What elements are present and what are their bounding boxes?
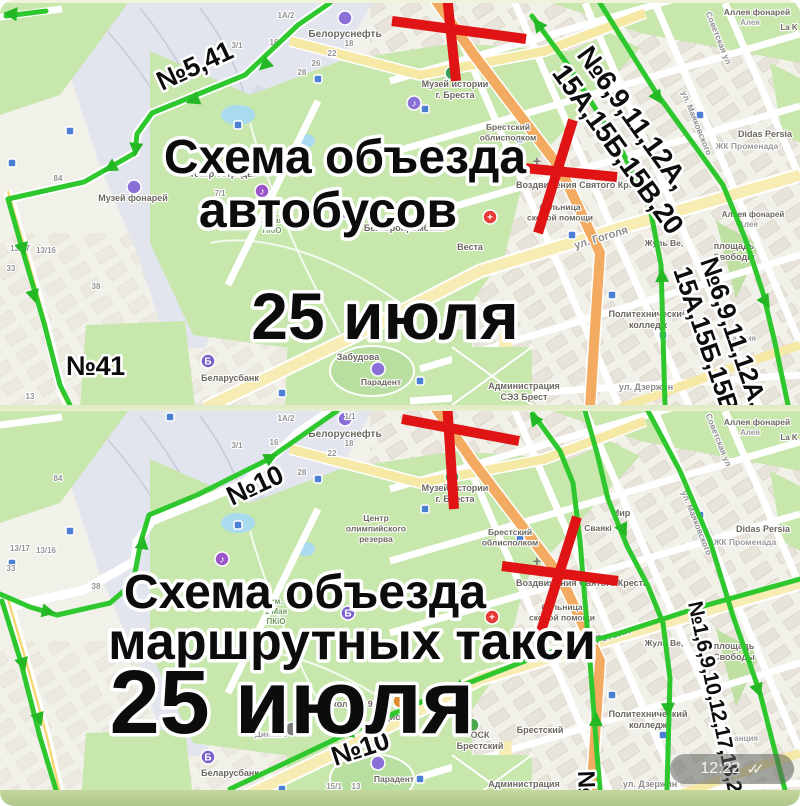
- map-label-line: 18: [345, 39, 354, 48]
- bus-stop-icon: [416, 775, 424, 783]
- map-label-line: 28: [298, 68, 307, 77]
- map-label: Аллея фонарей: [722, 210, 785, 219]
- map-label: La K: [780, 23, 798, 32]
- bus-stop-icon: [234, 521, 242, 529]
- map-label-line: 1А/2: [278, 414, 295, 423]
- map-label: Didas Persia: [738, 129, 793, 139]
- map-label-line: Didas Persia: [736, 524, 791, 534]
- map-label: 13/16: [36, 246, 57, 255]
- map-label-line: 13: [26, 392, 35, 401]
- bus-stop-icon: [166, 413, 174, 421]
- map-label: 16: [270, 438, 279, 447]
- bus-stop-icon: [421, 505, 429, 513]
- panel-title-line2: автобусов: [199, 182, 457, 238]
- map-label-line: La K: [780, 23, 798, 32]
- poi-marker-glyph: +: [487, 212, 493, 223]
- map-label-line: Didas Persia: [738, 129, 793, 139]
- map-label-line: 13: [352, 782, 361, 790]
- bus-stop-icon: [66, 527, 74, 535]
- map-label-line: резерва: [359, 534, 393, 544]
- poi-marker-icon: [338, 11, 352, 25]
- map-label-line: 1А/2: [278, 11, 295, 20]
- map-label: Забудова: [337, 352, 380, 362]
- map-label-line: облисполком: [482, 538, 539, 548]
- map-label: 1А/2: [278, 11, 295, 20]
- timestamp-time: 12:22: [700, 760, 740, 778]
- map-label-line: ЖК Променада: [715, 141, 779, 151]
- map-label-line: 22: [328, 449, 337, 458]
- map-label: 13/17: [10, 544, 31, 553]
- map-label-line: 16: [270, 438, 279, 447]
- bus-stop-icon: [66, 127, 74, 135]
- map-label-line: 22: [328, 49, 337, 58]
- bus-stop-icon: [314, 75, 322, 83]
- map-label-line: 1/1: [344, 412, 356, 421]
- map-label-line: СЭЗ Брест: [500, 392, 548, 402]
- map-label: 1/1: [344, 412, 356, 421]
- map-label-line: 3/1: [231, 41, 243, 50]
- read-receipt-icon: ✓✓: [746, 760, 763, 778]
- map-label-line: Администрация: [488, 779, 560, 789]
- bus-stop-icon: [659, 731, 667, 739]
- map-label-line: Аллея фонарей: [722, 210, 785, 219]
- panel-date: 25 июля: [251, 279, 518, 353]
- map-label: 18: [345, 439, 354, 448]
- map-label: ЖК Променада: [713, 537, 777, 547]
- map-label: 22: [328, 49, 337, 58]
- map-label: ЖК Променада: [715, 141, 779, 151]
- map-label: 26: [312, 59, 321, 68]
- map-label-line: площадь: [714, 641, 755, 651]
- route-number-line: №41: [66, 351, 125, 381]
- poi-marker-glyph: Б: [204, 356, 211, 367]
- bus-stop-icon: [568, 231, 576, 239]
- map-label: 13: [26, 392, 35, 401]
- map-label: 3/1: [231, 441, 243, 450]
- map-label: Музей фонарей: [98, 193, 168, 203]
- map-label-line: Парадент: [374, 774, 414, 784]
- bus-stop-icon: [278, 389, 286, 397]
- bus-stop-icon: [278, 785, 286, 790]
- map-label-line: Музей фонарей: [98, 193, 168, 203]
- map-label-line: La K: [780, 433, 798, 442]
- map-label-line: Брестский: [517, 725, 564, 735]
- map-label-line: Центр: [363, 513, 389, 523]
- map-label: 33: [7, 564, 16, 573]
- map-label: Жуль Ве,: [644, 238, 684, 248]
- map-label-line: Алея: [740, 428, 760, 437]
- map-label-line: 13/16: [36, 546, 57, 555]
- map-label: La K: [780, 433, 798, 442]
- map-label: Брестский: [517, 725, 564, 735]
- map-label-line: Парадент: [361, 377, 401, 387]
- map-label: Парадент: [361, 377, 401, 387]
- map-label-line: Забудова: [337, 352, 380, 362]
- bus-stop-icon: [234, 121, 242, 129]
- map-label-line: 38: [92, 582, 101, 591]
- road-closure-x-stroke: [447, 411, 454, 509]
- map-label-line: Политехнический: [609, 709, 688, 719]
- map-label-line: Алея: [740, 18, 760, 27]
- map-label-line: Аллея фонарей: [724, 417, 790, 427]
- route-number-label: №41: [66, 351, 125, 381]
- panel-title-line1: Схема объезда: [124, 566, 486, 619]
- map-label-line: 28: [298, 468, 307, 477]
- map-label: Беларусбанк: [201, 768, 259, 778]
- map-label: Didas Persia: [736, 524, 791, 534]
- map-label-line: 38: [92, 282, 101, 291]
- map-svg-0: ♪++ББ♪ БелоруснефтьТеатр эстрадыМузей фо…: [0, 3, 800, 405]
- map-label-line: Веста: [457, 242, 484, 252]
- map-label: 84: [54, 174, 63, 183]
- map-label-line: олимпийского: [346, 524, 406, 534]
- map-label: Алея: [740, 428, 760, 437]
- map-label: 38: [92, 582, 101, 591]
- map-panel-marshrutki: ♪++ББ БелоруснефтьЦентролимпийскогорезер…: [0, 411, 800, 790]
- map-label-line: Политехнический: [609, 309, 688, 319]
- map-label-line: 33: [7, 264, 16, 273]
- map-label-line: ЖК Променада: [713, 537, 777, 547]
- map-label: 3/1: [231, 41, 243, 50]
- bus-stop-icon: [8, 159, 16, 167]
- bus-stop-icon: [416, 377, 424, 385]
- map-label-line: Беларусбанк: [201, 768, 259, 778]
- map-label: Алея: [740, 18, 760, 27]
- map-label: Аллея фонарей: [724, 7, 790, 17]
- map-label: 38: [92, 282, 101, 291]
- map-label: Веста: [457, 242, 484, 252]
- map-label: 33: [7, 264, 16, 273]
- map-label: 15/1: [326, 782, 342, 790]
- panel-title-line1: Схема объезда: [164, 131, 526, 184]
- map-label: 84: [54, 474, 63, 483]
- route-number-label: №1: [572, 770, 600, 790]
- map-label: 28: [298, 68, 307, 77]
- map-label: Аллея фонарей: [724, 417, 790, 427]
- map-label: 1А/2: [278, 414, 295, 423]
- poi-marker-glyph: ♪: [220, 554, 225, 565]
- map-label-line: Брестский: [488, 527, 532, 537]
- detour-photo[interactable]: ♪++ББ♪ БелоруснефтьТеатр эстрадыМузей фо…: [0, 0, 800, 806]
- map-label: Парадент: [374, 774, 414, 784]
- poi-marker-icon: [127, 180, 141, 194]
- map-label-line: Беларусбанк: [201, 373, 259, 383]
- map-svg-1: ♪++ББ БелоруснефтьЦентролимпийскогорезер…: [0, 411, 800, 790]
- photo-bottom-edge: [0, 790, 800, 806]
- map-label-line: 3/1: [231, 441, 243, 450]
- bus-stop-icon: [421, 105, 429, 113]
- map-label: Беларусбанк: [201, 373, 259, 383]
- map-label: 18: [345, 39, 354, 48]
- map-label-line: Жуль Ве,: [644, 238, 684, 248]
- map-label: Брестскийоблисполком: [482, 527, 539, 548]
- map-label: 28: [298, 468, 307, 477]
- map-label-line: Администрация: [488, 381, 560, 391]
- map-label-line: 18: [345, 439, 354, 448]
- map-label-line: 13/16: [36, 246, 57, 255]
- bus-stop-icon: [608, 691, 616, 699]
- map-panel-buses: ♪++ББ♪ БелоруснефтьТеатр эстрадыМузей фо…: [0, 3, 800, 405]
- poi-marker-icon: [371, 362, 385, 376]
- map-label-line: 84: [54, 174, 63, 183]
- message-timestamp: 12:22 ✓✓: [670, 754, 794, 784]
- map-label: Сваякі: [584, 523, 612, 533]
- panel-date: 25 июля: [110, 653, 475, 753]
- map-label-line: 15/1: [326, 782, 342, 790]
- map-label-line: г. Бреста: [435, 90, 475, 100]
- poi-marker-glyph: ♪: [412, 98, 417, 109]
- bus-stop-icon: [314, 475, 322, 483]
- map-label-line: Аллея фонарей: [724, 7, 790, 17]
- map-label-line: колледж: [629, 720, 668, 730]
- map-label-line: Сваякі: [584, 523, 612, 533]
- map-label: АдминистрацияСЭЗ Брест: [488, 779, 560, 790]
- map-label-line: 13/17: [10, 544, 31, 553]
- map-label: 13: [352, 782, 361, 790]
- map-label-line: 84: [54, 474, 63, 483]
- map-label-line: 33: [7, 564, 16, 573]
- bus-stop-icon: [608, 291, 616, 299]
- route-number-line: №1: [572, 770, 600, 790]
- map-label: 22: [328, 449, 337, 458]
- poi-marker-glyph: Б: [204, 752, 211, 763]
- map-label-line: 26: [312, 59, 321, 68]
- map-label: 13/16: [36, 546, 57, 555]
